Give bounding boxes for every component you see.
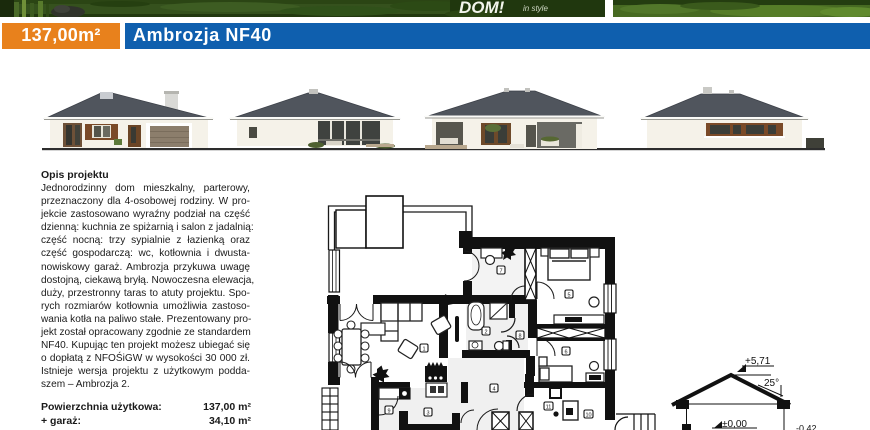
svg-text:-0,42: -0,42 — [796, 424, 817, 430]
svg-text:in style: in style — [523, 4, 548, 13]
svg-text:4: 4 — [492, 387, 495, 393]
svg-text:3: 3 — [426, 411, 429, 417]
svg-text:1: 1 — [422, 347, 425, 353]
svg-text:6: 6 — [564, 350, 567, 356]
svg-text:+5,71: +5,71 — [745, 356, 771, 367]
svg-text:2: 2 — [484, 330, 487, 336]
svg-text:±0,00: ±0,00 — [722, 419, 747, 430]
svg-text:9: 9 — [387, 409, 390, 415]
svg-text:8: 8 — [518, 334, 521, 340]
svg-text:10: 10 — [585, 413, 591, 419]
svg-text:7: 7 — [499, 269, 502, 275]
svg-text:11: 11 — [546, 405, 552, 411]
svg-text:25°: 25° — [764, 378, 779, 389]
svg-text:DOM!: DOM! — [459, 0, 505, 17]
svg-text:5: 5 — [567, 293, 570, 299]
